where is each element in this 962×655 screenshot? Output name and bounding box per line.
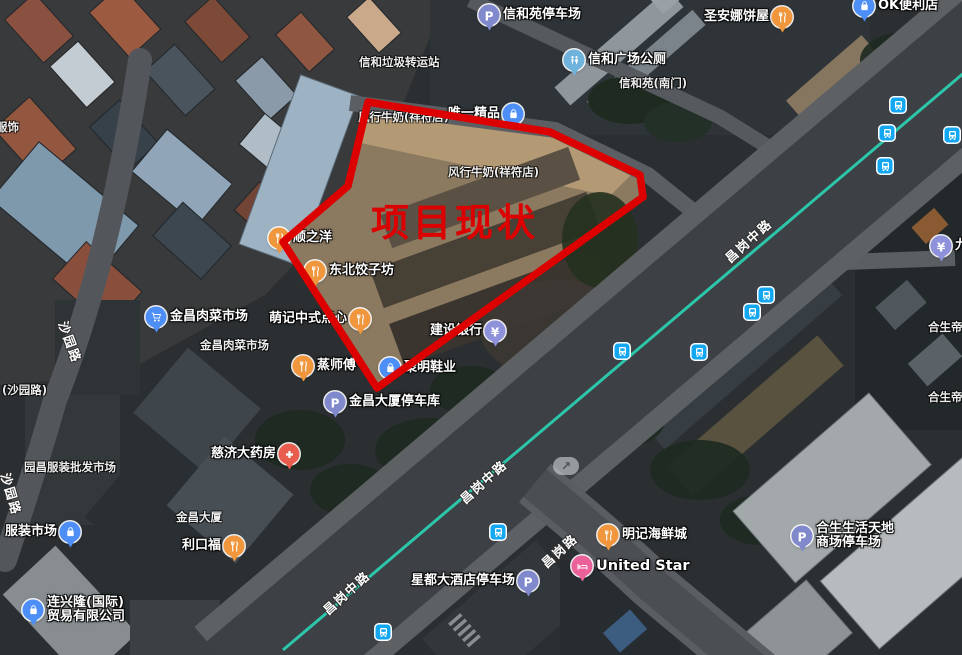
shopping-pin-icon — [858, 0, 870, 12]
bank-right-edge-label[interactable]: 九 — [955, 239, 962, 253]
weiyi-boutique-label[interactable]: 唯一精品 — [448, 107, 500, 121]
shayuan-road-1-label: 沙园路 — [55, 318, 88, 365]
likoufu-label[interactable]: 利口福 — [182, 539, 221, 553]
united-star-hotel-pin[interactable] — [572, 556, 593, 577]
juming-shoes-label[interactable]: 聚明鞋业 — [404, 361, 456, 375]
bank-right-edge-pin[interactable]: ¥ — [931, 236, 952, 257]
mengji-dimsum-pin[interactable] — [350, 309, 371, 330]
changgang-middle-road-1-label: 昌岗中路 — [720, 214, 776, 267]
shopping-pin-icon — [27, 604, 39, 616]
annotation-title: 项目现状 — [371, 192, 539, 247]
fushi-partial-label: 服饰 — [0, 119, 19, 135]
xinheyuan-parking-lot-pin[interactable]: P — [479, 5, 500, 26]
xinhe-trash-station-label: 信和垃圾转运站 — [359, 54, 440, 70]
ccb-bank-pin[interactable]: ¥ — [485, 321, 506, 342]
shopping-pin-icon — [64, 526, 76, 538]
mengji-dimsum-label[interactable]: 萌记中式点心 — [269, 312, 347, 326]
shunzhiyang-pin[interactable] — [269, 228, 290, 249]
xinheyuan-parking-lot-label[interactable]: 信和苑停车场 — [503, 8, 581, 22]
ccb-bank-label[interactable]: 建设银行 — [430, 324, 482, 338]
bus-stop-icon-5[interactable] — [759, 288, 774, 303]
bus-stop-icon-8[interactable] — [615, 344, 630, 359]
weiyi-boutique-pin[interactable] — [503, 104, 524, 125]
bus-stop-icon-3[interactable] — [945, 128, 960, 143]
bus-stop-icon-7[interactable] — [692, 345, 707, 360]
cart-pin-icon — [150, 311, 162, 323]
shenganna-bakery-label[interactable]: 圣安娜饼屋 — [704, 10, 769, 24]
xinheyuan-south-gate-label: 信和苑(南门) — [619, 75, 687, 91]
jinchang-tower-garage-label[interactable]: 金昌大厦停车库 — [349, 395, 440, 409]
hesheng-dijing-2-label: 合生帝景 — [928, 389, 962, 405]
ciji-pharmacy-pin[interactable] — [279, 444, 300, 465]
likoufu-pin[interactable] — [224, 536, 245, 557]
mingji-seafood-city-pin[interactable] — [598, 525, 619, 546]
dongbei-dumpling-house-label[interactable]: 东北饺子坊 — [329, 264, 394, 278]
hotel-pin-icon — [576, 560, 588, 572]
ok-convenience-store-pin[interactable] — [854, 0, 875, 17]
lianxinglong-trade-label[interactable]: 连兴隆(国际)贸易有限公司 — [47, 596, 125, 624]
changgang-middle-road-3-label: 昌岗中路 — [318, 566, 374, 619]
bus-stop-icon-1[interactable] — [891, 98, 906, 113]
fengxing-milk-street-label: 风行牛奶(祥符店) — [358, 109, 449, 125]
restroom-pin-icon — [568, 54, 580, 66]
parking-pin-icon: P — [331, 393, 340, 412]
shenganna-bakery-pin[interactable] — [772, 7, 793, 28]
juming-shoes-pin[interactable] — [380, 358, 401, 379]
bank-pin-icon: ¥ — [491, 322, 499, 341]
restaurant-pin-icon — [228, 540, 240, 552]
restaurant-pin-icon — [776, 11, 788, 23]
jinchang-market-area-label: 金昌肉菜市场 — [200, 337, 269, 353]
shayuan-road-2-label: 沙园路 — [0, 470, 27, 517]
parking-pin-icon: P — [524, 572, 533, 591]
zhengshifu-label[interactable]: 蒸师傅 — [317, 359, 356, 373]
bus-stop-icon-6[interactable] — [745, 305, 760, 320]
dongbei-dumpling-house-pin[interactable] — [305, 261, 326, 282]
jinchang-meat-market-label[interactable]: 金昌肉菜市场 — [170, 310, 248, 324]
yuanchang-clothing-wholesale-label: 园昌服装批发市场 — [24, 459, 116, 475]
parking-pin-icon: P — [798, 527, 807, 546]
direction-arrow-icon: ↗ — [553, 457, 579, 475]
pharmacy-pin-icon — [283, 448, 295, 460]
xingdu-hotel-parking-label[interactable]: 星都大酒店停车场 — [411, 574, 515, 588]
hesheng-tiandi-parking-pin[interactable]: P — [792, 526, 813, 547]
changgang-middle-road-2-label: 昌岗中路 — [455, 455, 511, 508]
xinhe-plaza-public-toilet-label[interactable]: 信和广场公厕 — [588, 53, 666, 67]
clothing-market-pin[interactable] — [60, 522, 81, 543]
shopping-pin-icon — [384, 362, 396, 374]
restaurant-pin-icon — [602, 529, 614, 541]
clothing-market-label[interactable]: 服装市场 — [5, 525, 57, 539]
lianxinglong-trade-pin[interactable] — [23, 600, 44, 621]
bus-stop-icon-4[interactable] — [878, 159, 893, 174]
xingdu-hotel-parking-pin[interactable]: P — [518, 571, 539, 592]
united-star-hotel-label[interactable]: United Star — [596, 559, 690, 573]
jinchang-tower-garage-pin[interactable]: P — [325, 392, 346, 413]
restaurant-pin-icon — [297, 360, 309, 372]
zhengshifu-pin[interactable] — [293, 356, 314, 377]
xinhe-plaza-public-toilet-pin[interactable] — [564, 50, 585, 71]
fengxing-milk-site-label: 风行牛奶(祥符店) — [448, 164, 539, 180]
bus-stop-icon-9[interactable] — [491, 525, 506, 540]
jinchang-meat-market-pin[interactable] — [146, 307, 167, 328]
jinchang-tower-label: 金昌大厦 — [176, 509, 222, 525]
shopping-pin-icon — [507, 108, 519, 120]
bus-stop-icon-10[interactable] — [376, 625, 391, 640]
restaurant-pin-icon — [273, 232, 285, 244]
shunzhiyang-label[interactable]: 顺之洋 — [293, 231, 332, 245]
hesheng-dijing-1-label: 合生帝景 — [928, 319, 962, 335]
restaurant-pin-icon — [309, 265, 321, 277]
bus-stop-icon-2[interactable] — [880, 126, 895, 141]
restaurant-pin-icon — [354, 313, 366, 325]
mingji-seafood-city-label[interactable]: 明记海鲜城 — [622, 528, 687, 542]
shayuan-road-paren-label: (沙园路) — [2, 382, 47, 398]
parking-pin-icon: P — [485, 6, 494, 25]
hesheng-tiandi-parking-label[interactable]: 合生生活天地商场停车场 — [816, 522, 894, 550]
ciji-pharmacy-label[interactable]: 慈济大药房 — [211, 447, 276, 461]
ok-convenience-store-label[interactable]: OK便利店 — [878, 0, 938, 13]
bank-pin-icon: ¥ — [937, 237, 945, 256]
satellite-map-canvas[interactable]: P信和苑停车场圣安娜饼屋OK便利店信和广场公厕唯一精品顺之洋东北饺子坊金昌肉菜市… — [0, 0, 962, 655]
